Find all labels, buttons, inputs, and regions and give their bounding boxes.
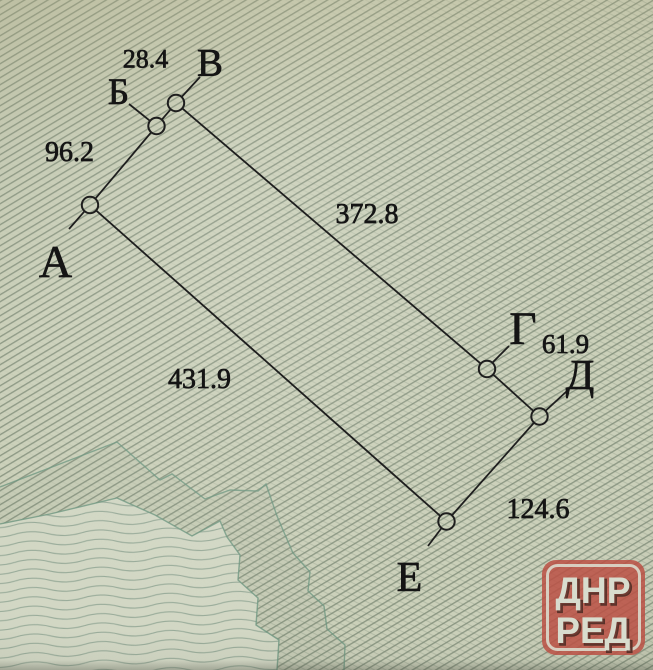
svg-text:124.6: 124.6: [507, 494, 570, 525]
svg-text:431.9: 431.9: [168, 364, 231, 395]
svg-text:РЕД: РЕД: [556, 610, 631, 651]
svg-text:Г: Г: [509, 303, 536, 355]
svg-text:Б: Б: [108, 72, 129, 113]
svg-text:61.9: 61.9: [542, 329, 589, 359]
svg-text:372.8: 372.8: [336, 199, 399, 230]
svg-text:В: В: [197, 42, 223, 85]
svg-text:Е: Е: [397, 555, 423, 601]
svg-text:28.4: 28.4: [123, 45, 169, 74]
svg-text:А: А: [39, 236, 72, 287]
svg-text:Д: Д: [566, 353, 595, 399]
svg-text:ДНР: ДНР: [556, 570, 631, 611]
svg-text:96.2: 96.2: [45, 137, 94, 168]
